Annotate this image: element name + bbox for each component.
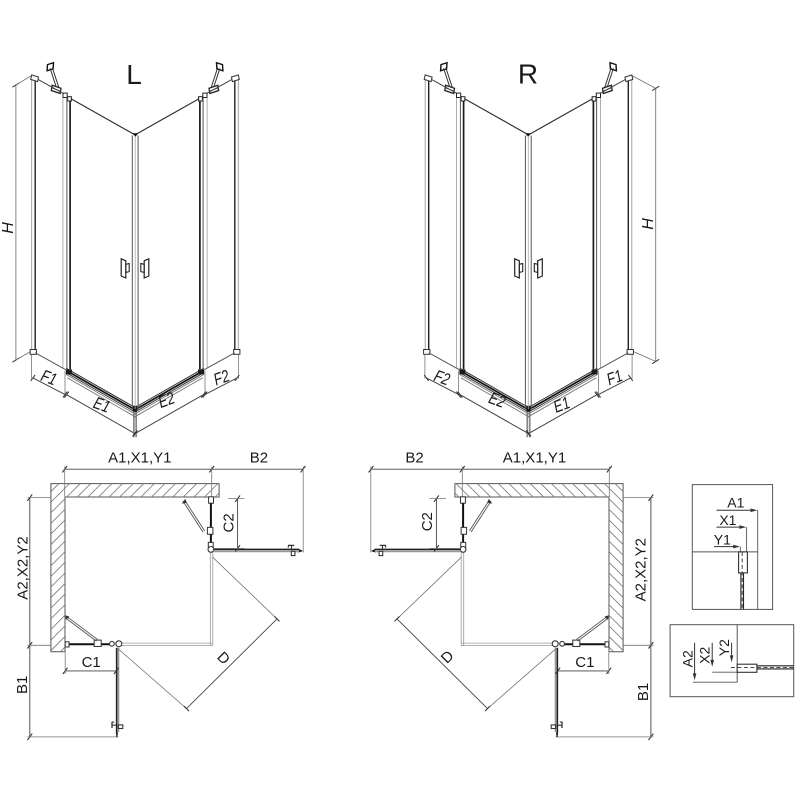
svg-text:Y2: Y2 [716,639,732,656]
svg-text:L: L [126,59,142,90]
svg-text:H: H [0,222,17,234]
svg-text:C2: C2 [221,513,238,532]
svg-text:B1: B1 [635,683,652,701]
svg-text:X1: X1 [719,512,736,528]
svg-text:X2: X2 [697,647,713,664]
svg-text:C1: C1 [575,654,594,671]
svg-text:B2: B2 [405,450,423,467]
svg-text:A2,X2,Y2: A2,X2,Y2 [14,536,31,599]
svg-text:C2: C2 [419,512,436,531]
svg-text:H: H [640,218,657,230]
svg-text:A1,X1,Y1: A1,X1,Y1 [503,449,566,466]
svg-text:A2: A2 [680,650,696,667]
svg-text:A2,X2,Y2: A2,X2,Y2 [632,538,649,601]
svg-text:B1: B1 [14,676,31,694]
svg-text:Y1: Y1 [714,531,731,547]
svg-text:C1: C1 [82,654,101,671]
svg-text:A1: A1 [727,494,744,510]
svg-text:R: R [518,59,538,90]
svg-text:A1,X1,Y1: A1,X1,Y1 [108,449,171,466]
svg-text:B2: B2 [250,450,268,467]
